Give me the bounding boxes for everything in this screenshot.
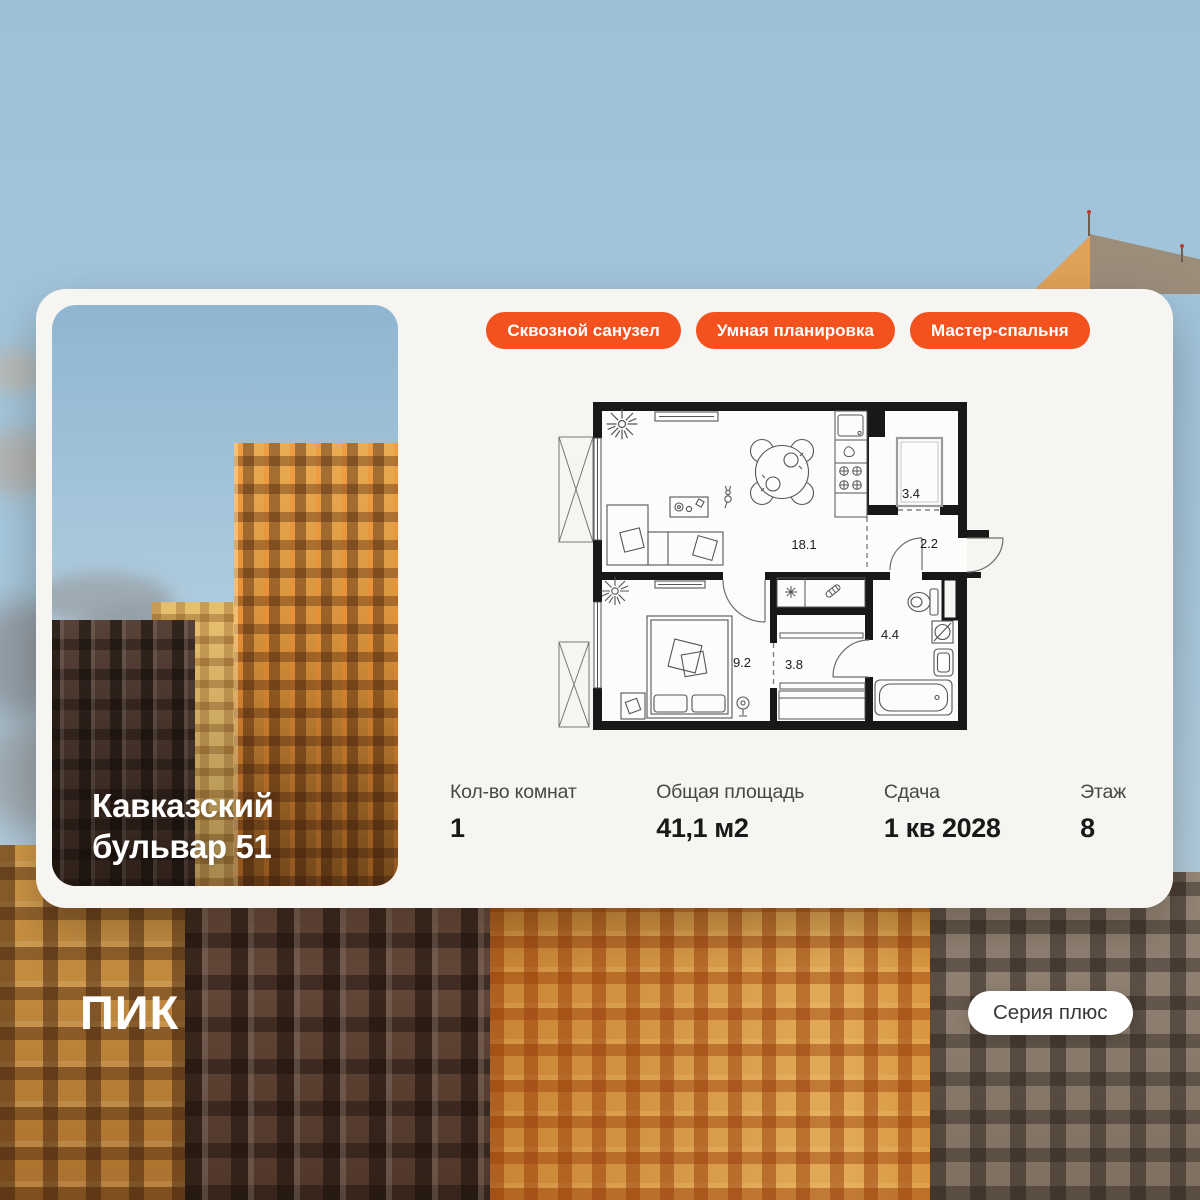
room-area-label: 2.2	[920, 536, 938, 551]
building-facade-shadow	[930, 872, 1200, 1200]
stat-label: Кол-во комнат	[450, 781, 577, 804]
stat-delivery: Сдача 1 кв 2028	[884, 781, 1001, 844]
room-area-label: 18.1	[791, 537, 816, 552]
stat-total-area: Общая площадь 41,1 м2	[656, 781, 804, 844]
promo-banner: Кавказский бульвар 51 Сквозной санузел У…	[0, 0, 1200, 1200]
duct-shaft	[943, 579, 957, 619]
building-facade-brown	[185, 870, 490, 1200]
pik-logo: ПИК	[80, 985, 179, 1040]
floorplan: 18.1 3.4 2.2 4.4 9.2 3.8	[555, 390, 1015, 735]
tag-smart-layout: Умная планировка	[696, 312, 895, 349]
stat-value: 1	[450, 813, 577, 844]
balcony	[559, 437, 593, 727]
project-photo: Кавказский бульвар 51	[52, 305, 398, 886]
stat-rooms: Кол-во комнат 1	[450, 781, 577, 844]
stat-value: 41,1 м2	[656, 813, 804, 844]
series-badge: Серия плюс	[968, 991, 1133, 1035]
stat-label: Сдача	[884, 781, 1001, 804]
project-title: Кавказский бульвар 51	[92, 786, 384, 868]
apartment-card: Кавказский бульвар 51 Сквозной санузел У…	[36, 289, 1173, 908]
stat-value: 1 кв 2028	[884, 813, 1001, 844]
room-area-label: 3.8	[785, 657, 803, 672]
building-facade-sunlit	[490, 862, 930, 1200]
feature-tags: Сквозной санузел Умная планировка Мастер…	[450, 312, 1126, 349]
room-area-label: 3.4	[902, 486, 920, 501]
stat-label: Этаж	[1080, 781, 1126, 804]
antenna-icon	[1181, 248, 1183, 262]
room-area-label: 4.4	[881, 627, 899, 642]
stat-label: Общая площадь	[656, 781, 804, 804]
room-area-label: 9.2	[733, 655, 751, 670]
antenna-icon	[1088, 214, 1090, 236]
apartment-stats: Кол-во комнат 1 Общая площадь 41,1 м2 Сд…	[450, 781, 1126, 844]
stat-value: 8	[1080, 813, 1126, 844]
stat-floor: Этаж 8	[1080, 781, 1126, 844]
tag-master-bedroom: Мастер-спальня	[910, 312, 1090, 349]
tag-walkthrough-bathroom: Сквозной санузел	[486, 312, 681, 349]
